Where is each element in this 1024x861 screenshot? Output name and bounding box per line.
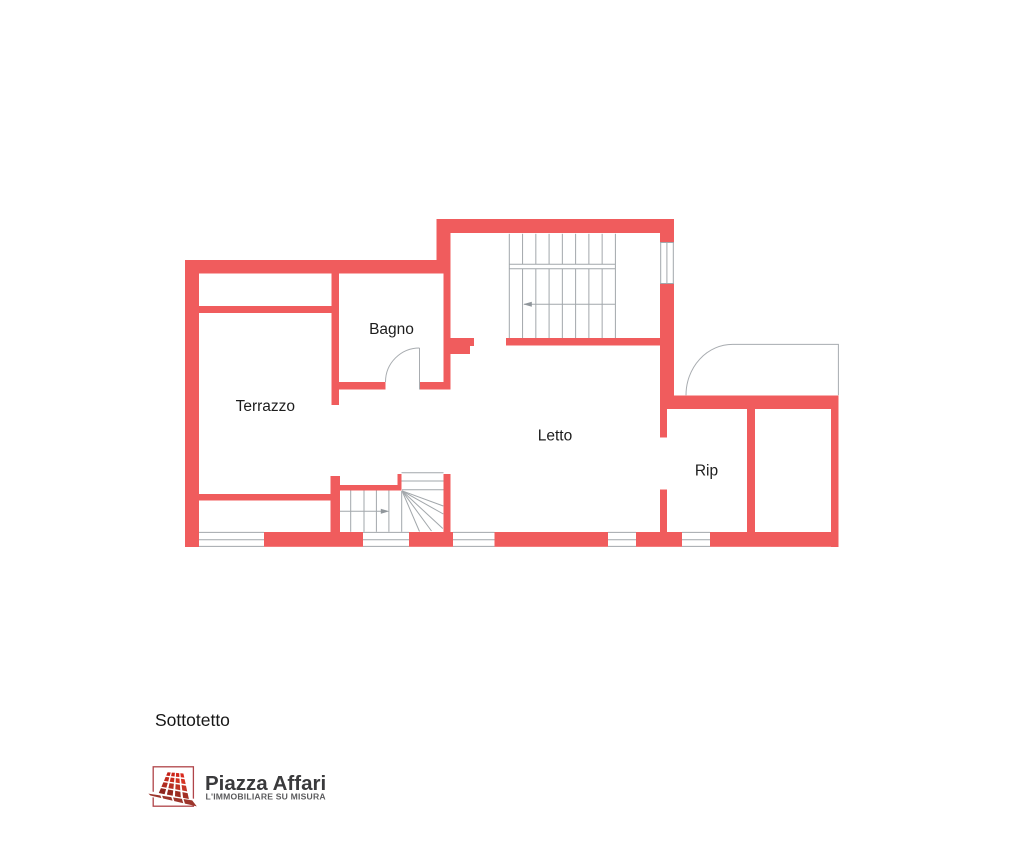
svg-text:Letto: Letto — [538, 428, 572, 445]
svg-text:Bagno: Bagno — [369, 321, 414, 338]
svg-text:Rip: Rip — [695, 462, 718, 479]
svg-text:Sottotetto: Sottotetto — [155, 710, 230, 730]
svg-text:Terrazzo: Terrazzo — [236, 398, 295, 415]
svg-text:L'IMMOBILIARE SU MISURA: L'IMMOBILIARE SU MISURA — [206, 792, 326, 802]
